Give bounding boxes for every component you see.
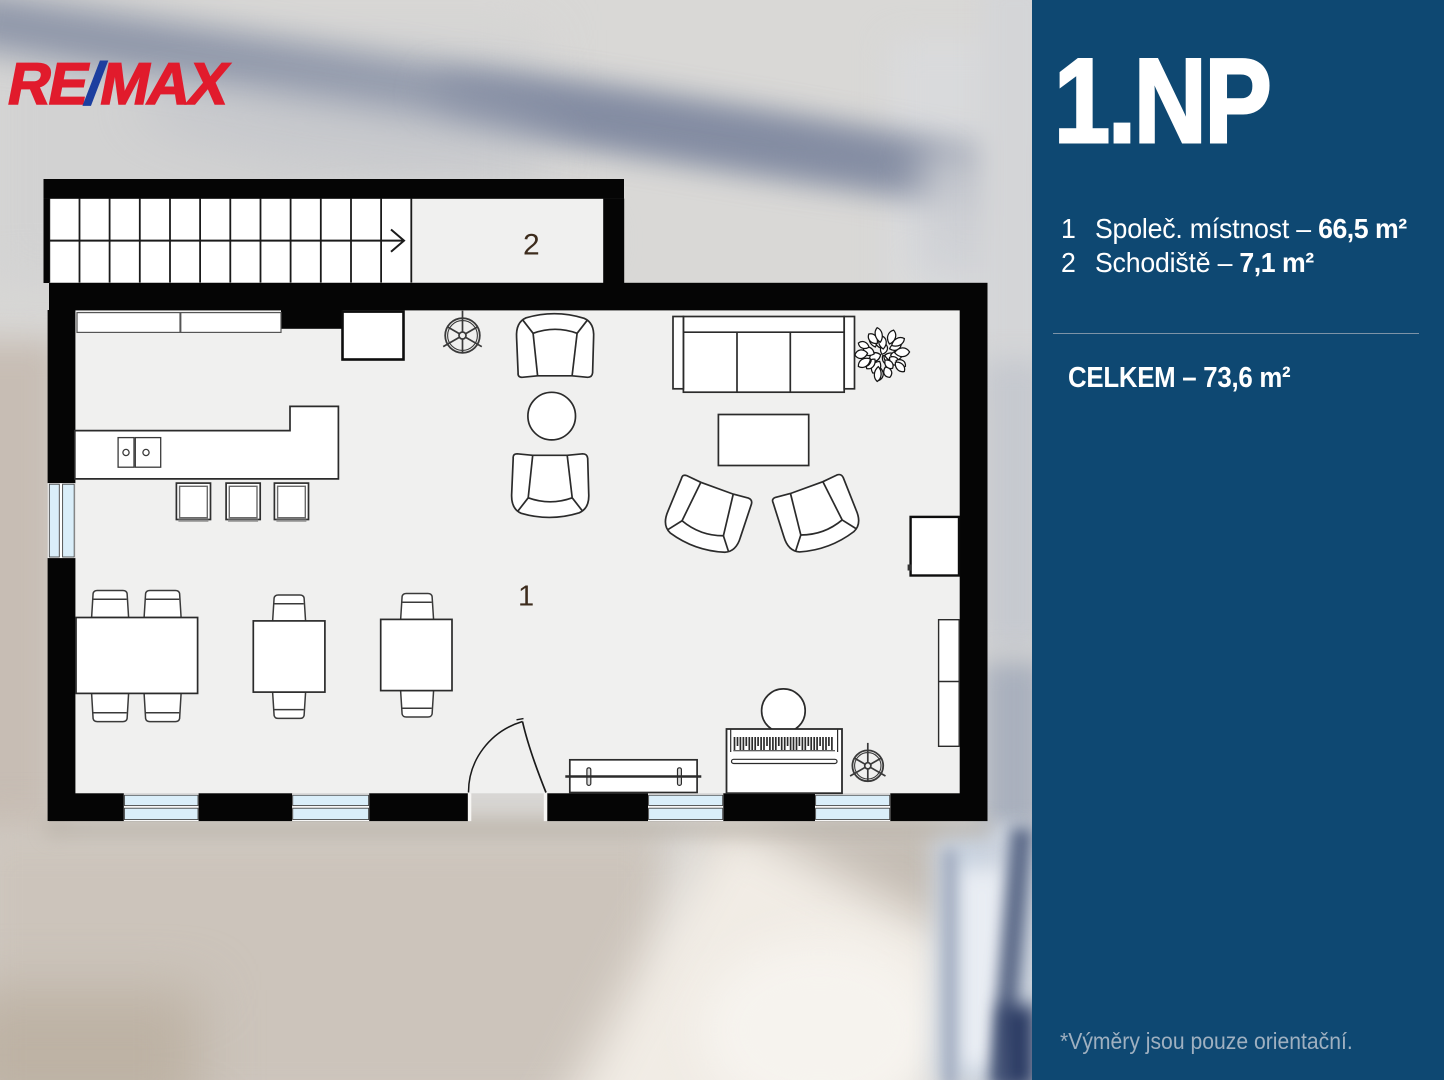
- svg-text:1: 1: [518, 581, 534, 613]
- svg-text:2: 2: [523, 229, 540, 262]
